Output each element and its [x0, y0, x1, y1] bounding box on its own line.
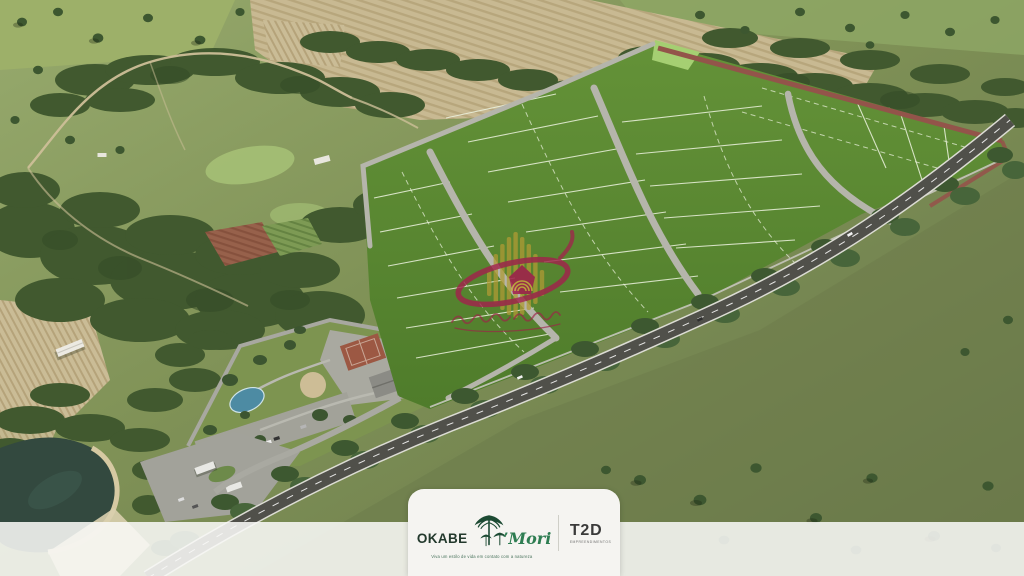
mori-wordmark: ’Mori — [503, 529, 551, 548]
brand-tagline: Viva um estilo de vida em contato com a … — [431, 554, 532, 559]
okabe-wordmark: OKABE — [417, 531, 468, 546]
aerial-render: OKABE ’Mori Viva um estilo de vida em co… — [0, 0, 1024, 576]
t2d-subtext: EMPREENDIMENTOS — [570, 540, 611, 544]
brand-badge: OKABE ’Mori Viva um estilo de vida em co… — [408, 489, 620, 576]
t2d-wordmark: T2D — [570, 523, 603, 539]
sand-court — [300, 372, 326, 398]
badge-divider — [558, 515, 559, 551]
araucaria-tree-icon — [472, 506, 506, 551]
okabe-mori-logo: OKABE ’Mori Viva um estilo de vida em co… — [417, 513, 547, 559]
t2d-logo: T2D EMPREENDIMENTOS — [570, 523, 611, 544]
